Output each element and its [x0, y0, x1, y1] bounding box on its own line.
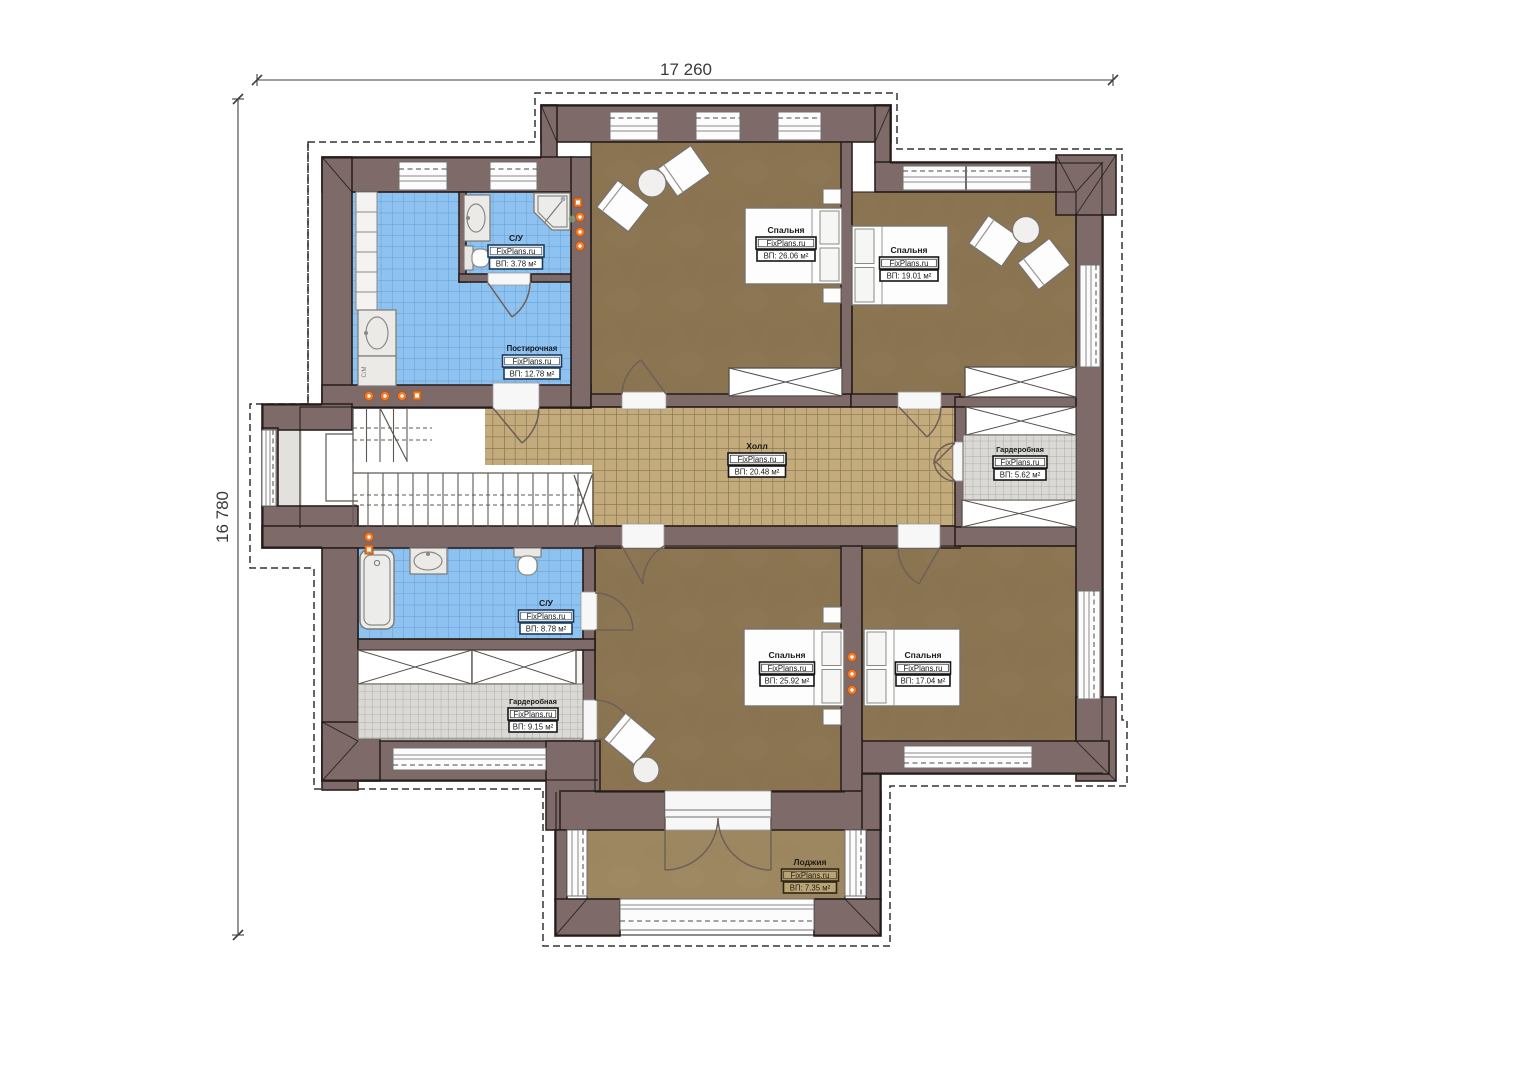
svg-text:Постирочная: Постирочная	[507, 344, 558, 353]
svg-text:ВП: 25.92 м²: ВП: 25.92 м²	[765, 677, 810, 686]
svg-text:16 780: 16 780	[213, 491, 232, 543]
svg-text:ВП: 19.01 м²: ВП: 19.01 м²	[887, 272, 932, 281]
svg-text:Лоджия: Лоджия	[793, 857, 826, 867]
svg-text:ВП: 3.78 м²: ВП: 3.78 м²	[496, 260, 537, 269]
svg-text:Спальня: Спальня	[890, 245, 927, 255]
svg-text:17 260: 17 260	[660, 60, 712, 79]
svg-text:Спальня: Спальня	[767, 225, 804, 235]
svg-text:ВП: 20.48 м²: ВП: 20.48 м²	[735, 468, 780, 477]
svg-text:FixPlans.ru: FixPlans.ru	[513, 357, 552, 366]
svg-text:ВП: 7.35 м²: ВП: 7.35 м²	[790, 884, 831, 893]
svg-text:FixPlans.ru: FixPlans.ru	[738, 455, 777, 464]
svg-text:FixPlans.ru: FixPlans.ru	[768, 664, 807, 673]
svg-text:FixPlans.ru: FixPlans.ru	[527, 612, 566, 621]
svg-text:Спальня: Спальня	[768, 650, 805, 660]
svg-text:Холл: Холл	[746, 441, 768, 451]
svg-text:FixPlans.ru: FixPlans.ru	[497, 247, 536, 256]
svg-text:FixPlans.ru: FixPlans.ru	[767, 239, 806, 248]
svg-text:С/М: С/М	[362, 367, 368, 378]
svg-text:ВП: 17.04 м²: ВП: 17.04 м²	[901, 677, 946, 686]
svg-text:Спальня: Спальня	[904, 650, 941, 660]
svg-text:ВП: 9.15 м²: ВП: 9.15 м²	[513, 723, 554, 732]
svg-text:ВП: 26.06 м²: ВП: 26.06 м²	[764, 252, 809, 261]
svg-text:Гардеробная: Гардеробная	[509, 697, 557, 706]
svg-text:Гардеробная: Гардеробная	[996, 445, 1044, 454]
svg-text:FixPlans.ru: FixPlans.ru	[904, 664, 943, 673]
svg-text:С/У: С/У	[509, 233, 524, 243]
svg-text:FixPlans.ru: FixPlans.ru	[890, 259, 929, 268]
svg-text:FixPlans.ru: FixPlans.ru	[791, 871, 830, 880]
svg-text:ВП: 8.78 м²: ВП: 8.78 м²	[526, 625, 567, 634]
svg-text:FixPlans.ru: FixPlans.ru	[1001, 458, 1040, 467]
svg-text:С/У: С/У	[539, 598, 554, 608]
svg-text:FixPlans.ru: FixPlans.ru	[514, 710, 553, 719]
svg-text:ВП: 5.62 м²: ВП: 5.62 м²	[1000, 471, 1041, 480]
svg-text:ВП: 12.78 м²: ВП: 12.78 м²	[510, 370, 555, 379]
